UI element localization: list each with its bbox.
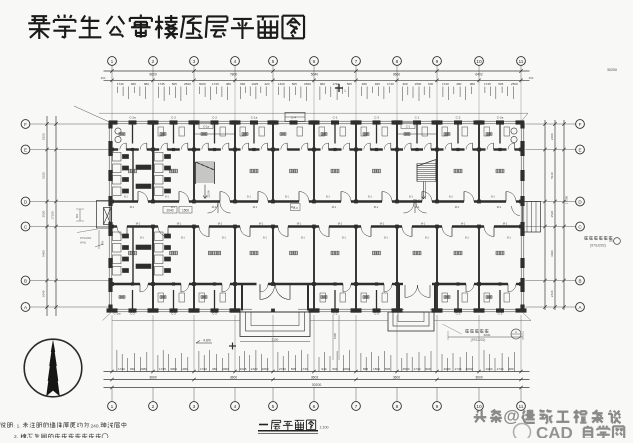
svg-text:C-1: C-1 [415,116,420,120]
svg-text:3000: 3000 [222,367,229,371]
svg-text:1:100: 1:100 [320,426,329,430]
svg-text:3000: 3000 [170,367,177,371]
svg-text:M-1: M-1 [177,222,182,226]
svg-text:2520: 2520 [42,133,46,140]
svg-text:M-1: M-1 [332,205,337,209]
svg-text:C-1: C-1 [333,116,338,120]
svg-text:E: E [578,148,581,153]
svg-text:5400: 5400 [42,250,46,257]
svg-text:M-1: M-1 [374,205,379,209]
svg-text:17100: 17100 [51,211,55,220]
svg-text:C-2: C-2 [212,116,217,120]
svg-text:940: 940 [375,82,380,86]
svg-text:1025: 1025 [251,82,258,86]
svg-text:9: 9 [436,59,439,65]
svg-text:5110: 5110 [550,172,554,179]
svg-text:860: 860 [363,367,368,371]
svg-text:8: 8 [396,59,399,65]
svg-text:2040: 2040 [166,209,173,213]
svg-text:PH-2: PH-2 [413,198,420,202]
svg-text:5040: 5040 [311,72,319,76]
svg-text:B: B [24,279,27,284]
svg-text:5220: 5220 [42,172,46,179]
svg-text:2.: 2. [14,434,18,438]
svg-text:C-2: C-2 [171,312,176,316]
svg-text:C-4: C-4 [291,116,296,120]
svg-text:1: 1 [111,59,114,65]
svg-text:M-1: M-1 [380,222,385,226]
svg-text:C-1a: C-1a [203,124,210,128]
svg-text:C-2: C-2 [212,312,217,316]
svg-text:6000: 6000 [484,333,491,337]
svg-text:C-2: C-2 [130,312,135,316]
svg-text:1740: 1740 [387,82,394,86]
svg-text:3000: 3000 [466,367,473,371]
svg-text:B-1: B-1 [263,237,267,240]
svg-text:1740: 1740 [117,82,124,86]
svg-text:30200: 30200 [312,383,322,387]
svg-text:C-1a: C-1a [251,116,258,120]
svg-text:: 1.: : 1. [14,424,21,430]
svg-text:B-1: B-1 [449,196,453,199]
svg-text:B-1: B-1 [465,237,469,240]
svg-text:1740: 1740 [118,367,125,371]
svg-text:1740: 1740 [442,82,449,86]
svg-text:10: 10 [476,59,482,65]
svg-text:M-1: M-1 [136,222,141,226]
svg-text:3603: 3603 [311,375,319,379]
svg-text:E: E [24,148,27,153]
svg-text:3: 3 [193,404,196,410]
svg-text:5: 5 [272,404,275,410]
svg-text:2: 2 [152,404,155,410]
svg-text:@: @ [503,407,520,426]
svg-text:5150: 5150 [272,337,279,341]
svg-text:6: 6 [313,59,316,65]
svg-text:C-2: C-2 [333,312,338,316]
svg-text:B-1: B-1 [384,237,388,240]
svg-text:1740: 1740 [200,367,207,371]
svg-text:M-1: M-1 [130,205,135,209]
svg-text:505: 505 [292,82,297,86]
svg-text:1960: 1960 [486,367,493,371]
svg-text:2400: 2400 [550,133,554,140]
svg-text:2500: 2500 [511,82,518,86]
svg-text:C-2: C-2 [498,312,503,316]
svg-text:F: F [24,122,27,127]
svg-text:M-1: M-1 [421,222,426,226]
svg-text:B-1: B-1 [124,196,128,199]
svg-text:7: 7 [355,404,358,410]
svg-text:M-1: M-1 [461,222,466,226]
svg-text:B-1: B-1 [326,196,330,199]
svg-text:505: 505 [385,367,390,371]
svg-text:2436: 2436 [550,290,554,297]
svg-text:1740: 1740 [301,367,308,371]
svg-text:M-1: M-1 [338,222,343,226]
svg-text:M-1: M-1 [253,205,258,209]
svg-text:B-1: B-1 [222,237,226,240]
svg-text:3936: 3936 [550,250,554,257]
svg-text:M-1: M-1 [415,205,420,209]
svg-text:C-2: C-2 [456,312,461,316]
svg-text:M-1: M-1 [297,222,302,226]
svg-text:505: 505 [172,82,177,86]
svg-text:480: 480 [508,367,513,371]
svg-text:C-2: C-2 [456,116,461,120]
svg-text:960: 960 [425,367,430,371]
svg-text:2500: 2500 [403,367,410,371]
svg-text:5: 5 [272,59,275,65]
svg-text:M-1: M-1 [171,205,176,209]
svg-text:1740: 1740 [414,367,421,371]
svg-text:480: 480 [131,82,136,86]
svg-text:1320: 1320 [278,82,285,86]
svg-text:480: 480 [226,82,231,86]
svg-text:1980: 1980 [333,332,337,339]
svg-text:1500: 1500 [373,367,380,371]
svg-text:B-1: B-1 [425,237,429,240]
svg-text:1320: 1320 [251,367,258,371]
svg-text:(97SJ202): (97SJ202) [590,244,606,248]
svg-text:M-1: M-1 [259,222,264,226]
svg-text:2520: 2520 [550,210,554,217]
svg-text:2740: 2740 [279,367,286,371]
svg-text:1960: 1960 [181,367,188,371]
svg-text:2: 2 [152,59,155,65]
svg-text:6402: 6402 [475,72,483,76]
svg-text:B-1: B-1 [409,196,413,199]
svg-text:1890: 1890 [304,82,311,86]
svg-text:B-1: B-1 [507,237,511,240]
svg-text:1890: 1890 [262,367,269,371]
svg-text:1745: 1745 [158,82,165,86]
svg-text:B-1: B-1 [140,237,144,240]
svg-text:1500: 1500 [414,82,421,86]
svg-text:F: F [579,122,582,127]
svg-text:980: 980 [144,82,149,86]
svg-text:960: 960 [240,82,245,86]
svg-text:B-1: B-1 [285,196,289,199]
svg-text:940: 940 [321,367,326,371]
svg-text:900: 900 [75,213,79,218]
svg-text:600: 600 [428,82,433,86]
svg-text:M-1: M-1 [212,205,217,209]
svg-text:C-2: C-2 [171,116,176,120]
svg-text:3000: 3000 [199,82,206,86]
svg-text:B-1: B-1 [301,237,305,240]
svg-text:17100: 17100 [565,195,569,204]
svg-text:B-1: B-1 [165,196,169,199]
svg-text:1740: 1740 [497,367,504,371]
svg-text:2980: 2980 [444,367,451,371]
svg-text:500: 500 [332,367,337,371]
svg-text:B-1: B-1 [247,196,251,199]
svg-text:960: 960 [320,82,325,86]
svg-text:980: 980 [470,82,475,86]
svg-text:3600: 3600 [149,375,157,379]
svg-text:C-3: C-3 [374,116,379,120]
svg-text:1740: 1740 [212,82,219,86]
svg-text:2520: 2520 [42,210,46,217]
svg-text:480: 480 [212,367,217,371]
svg-text:480: 480 [362,82,367,86]
svg-text:9: 9 [436,404,439,410]
svg-text:30200: 30200 [607,68,617,72]
svg-text:M-1: M-1 [503,222,508,226]
svg-text:M-1: M-1 [218,222,223,226]
svg-text:2980: 2980 [140,367,147,371]
svg-text:2500: 2500 [184,82,191,86]
svg-text:B-1: B-1 [181,237,185,240]
svg-text:6: 6 [313,404,316,410]
svg-text:505: 505 [498,82,503,86]
svg-text:1: 1 [111,404,114,410]
svg-text:480: 480 [456,82,461,86]
svg-text:B-1: B-1 [368,196,372,199]
svg-text:B-1: B-1 [342,237,346,240]
svg-text:1745: 1745 [484,82,491,86]
svg-text:C-1: C-1 [406,124,411,128]
svg-text:8: 8 [396,404,399,410]
svg-text:4: 4 [234,59,237,65]
svg-text:4: 4 [234,404,237,410]
svg-text:240.: 240. [91,424,100,430]
svg-text:10: 10 [476,404,482,410]
svg-text:505: 505 [347,82,352,86]
svg-text:97SJ202: 97SJ202 [80,236,91,240]
svg-text:3600: 3600 [393,375,401,379]
svg-text:CAD: CAD [536,424,573,439]
svg-text:M-1: M-1 [455,205,460,209]
svg-text:1025: 1025 [240,367,247,371]
svg-text:960: 960 [130,367,135,371]
svg-text:9600: 9600 [149,72,157,76]
svg-text:300: 300 [529,76,534,80]
svg-text:1745: 1745 [455,367,462,371]
svg-text:C-2a: C-2a [129,116,136,120]
svg-text:M-1: M-1 [291,205,296,209]
svg-text:1: 1 [344,89,346,93]
svg-text:3600: 3600 [230,375,238,379]
svg-text:C-2a: C-2a [497,116,504,120]
svg-text:B-1: B-1 [491,196,495,199]
svg-text:300: 300 [101,76,106,80]
svg-text:7: 7 [355,59,358,65]
svg-text:B: B [578,279,581,284]
svg-text:3600: 3600 [475,375,483,379]
svg-text:9660: 9660 [393,72,401,76]
svg-text:11: 11 [519,59,524,65]
svg-text:1890: 1890 [343,367,350,371]
svg-text:600: 600 [101,240,105,245]
svg-text:505: 505 [291,367,296,371]
svg-text:300: 300 [402,82,407,86]
svg-text:(97SJ202): (97SJ202) [471,338,486,342]
svg-text:7800: 7800 [230,72,238,76]
svg-text:B-1: B-1 [206,196,210,199]
svg-text:420: 420 [264,82,269,86]
svg-text:C-1w: C-1w [113,312,121,316]
svg-text:2640: 2640 [42,290,46,297]
svg-text:M-1: M-1 [497,205,502,209]
svg-text:C-2: C-2 [374,312,379,316]
svg-text:(4%): (4%) [80,241,86,245]
svg-text:1745: 1745 [159,367,166,371]
svg-text:3: 3 [193,59,196,65]
svg-text:4.8%: 4.8% [203,339,211,343]
svg-text:1500: 1500 [182,209,189,213]
